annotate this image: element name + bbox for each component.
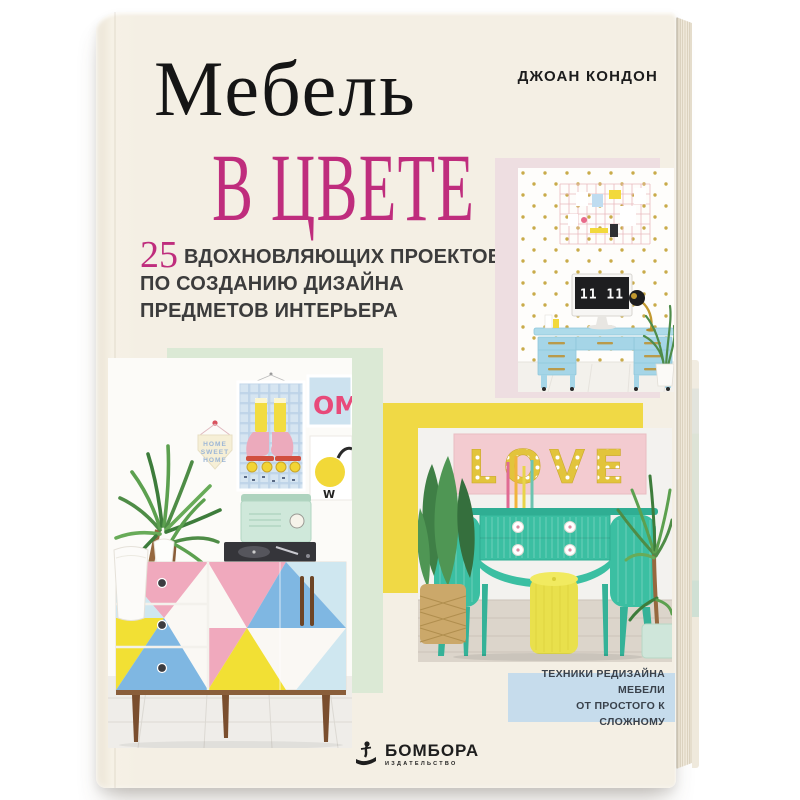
record-player [224,542,316,562]
photo-office-desk: 11 11 [518,168,674,392]
back-cover-sliver [692,360,699,768]
book-cover: ДЖОАН КОНДОН Мебель в цвете 25ВДОХНОВЛЯЮ… [96,12,676,788]
svg-text:SWEET: SWEET [201,449,229,456]
subtitle-text-2: ПО СОЗДАНИЮ ДИЗАЙНА [140,271,502,298]
office-desk-illustration: 11 11 [518,168,674,392]
clock-display: 11 11 [580,288,624,303]
badge-line-1: ТЕХНИКИ РЕДИЗАЙНА МЕБЕЛИ [508,666,665,698]
publisher-name: БОМБОРА [385,742,479,759]
subtitle: 25ВДОХНОВЛЯЮЩИХ ПРОЕКТОВ ПО СОЗДАНИЮ ДИЗ… [140,242,502,325]
dresser-illustration: HOME SWEET HOME [108,358,352,748]
love-marquee-sign: LOVE [454,434,646,494]
photo-teal-sideboard: LOVE [418,428,672,662]
svg-text:W: W [323,488,335,501]
product-photo: ДЖОАН КОНДОН Мебель в цвете 25ВДОХНОВЛЯЮ… [0,0,800,800]
svg-text:HOME: HOME [203,457,227,464]
publisher-logo: БОМБОРА ИЗДАТЕЛЬСТВО [354,740,479,768]
love-sign-text: LOVE [468,440,633,494]
yellow-artwork: W [310,436,352,501]
om-poster: OM [308,376,352,426]
subtitle-text-1: ВДОХНОВЛЯЮЩИХ ПРОЕКТОВ [184,246,502,268]
mint-radio [241,494,311,542]
publisher-surfer-icon [354,740,378,768]
white-planter [114,547,148,621]
publisher-tagline: ИЗДАТЕЛЬСТВО [385,761,479,767]
publisher-text: БОМБОРА ИЗДАТЕЛЬСТВО [385,742,479,767]
svg-text:OM: OM [313,391,352,420]
white-jar [154,539,174,562]
tagline-badge: ТЕХНИКИ РЕДИЗАЙНА МЕБЕЛИ ОТ ПРОСТОГО К С… [508,673,675,722]
subtitle-row-1: 25ВДОХНОВЛЯЮЩИХ ПРОЕКТОВ [140,242,502,271]
author-name: ДЖОАН КОНДОН [518,68,658,85]
sideboard-illustration: LOVE [418,428,672,662]
badge-line-2: ОТ ПРОСТОГО К СЛОЖНОМУ [508,698,665,730]
book-page-edge [676,17,692,769]
title-line-2: в цвете [212,140,475,236]
subtitle-text-3: ПРЕДМЕТОВ ИНТЕРЬЕРА [140,298,502,325]
yellow-pouf [530,572,578,654]
subtitle-number: 25 [140,234,178,276]
photo-geometric-dresser: HOME SWEET HOME [108,358,352,748]
svg-text:HOME: HOME [203,441,227,448]
roller-skates-poster [238,373,304,491]
title-line-1: Мебель [154,50,417,128]
